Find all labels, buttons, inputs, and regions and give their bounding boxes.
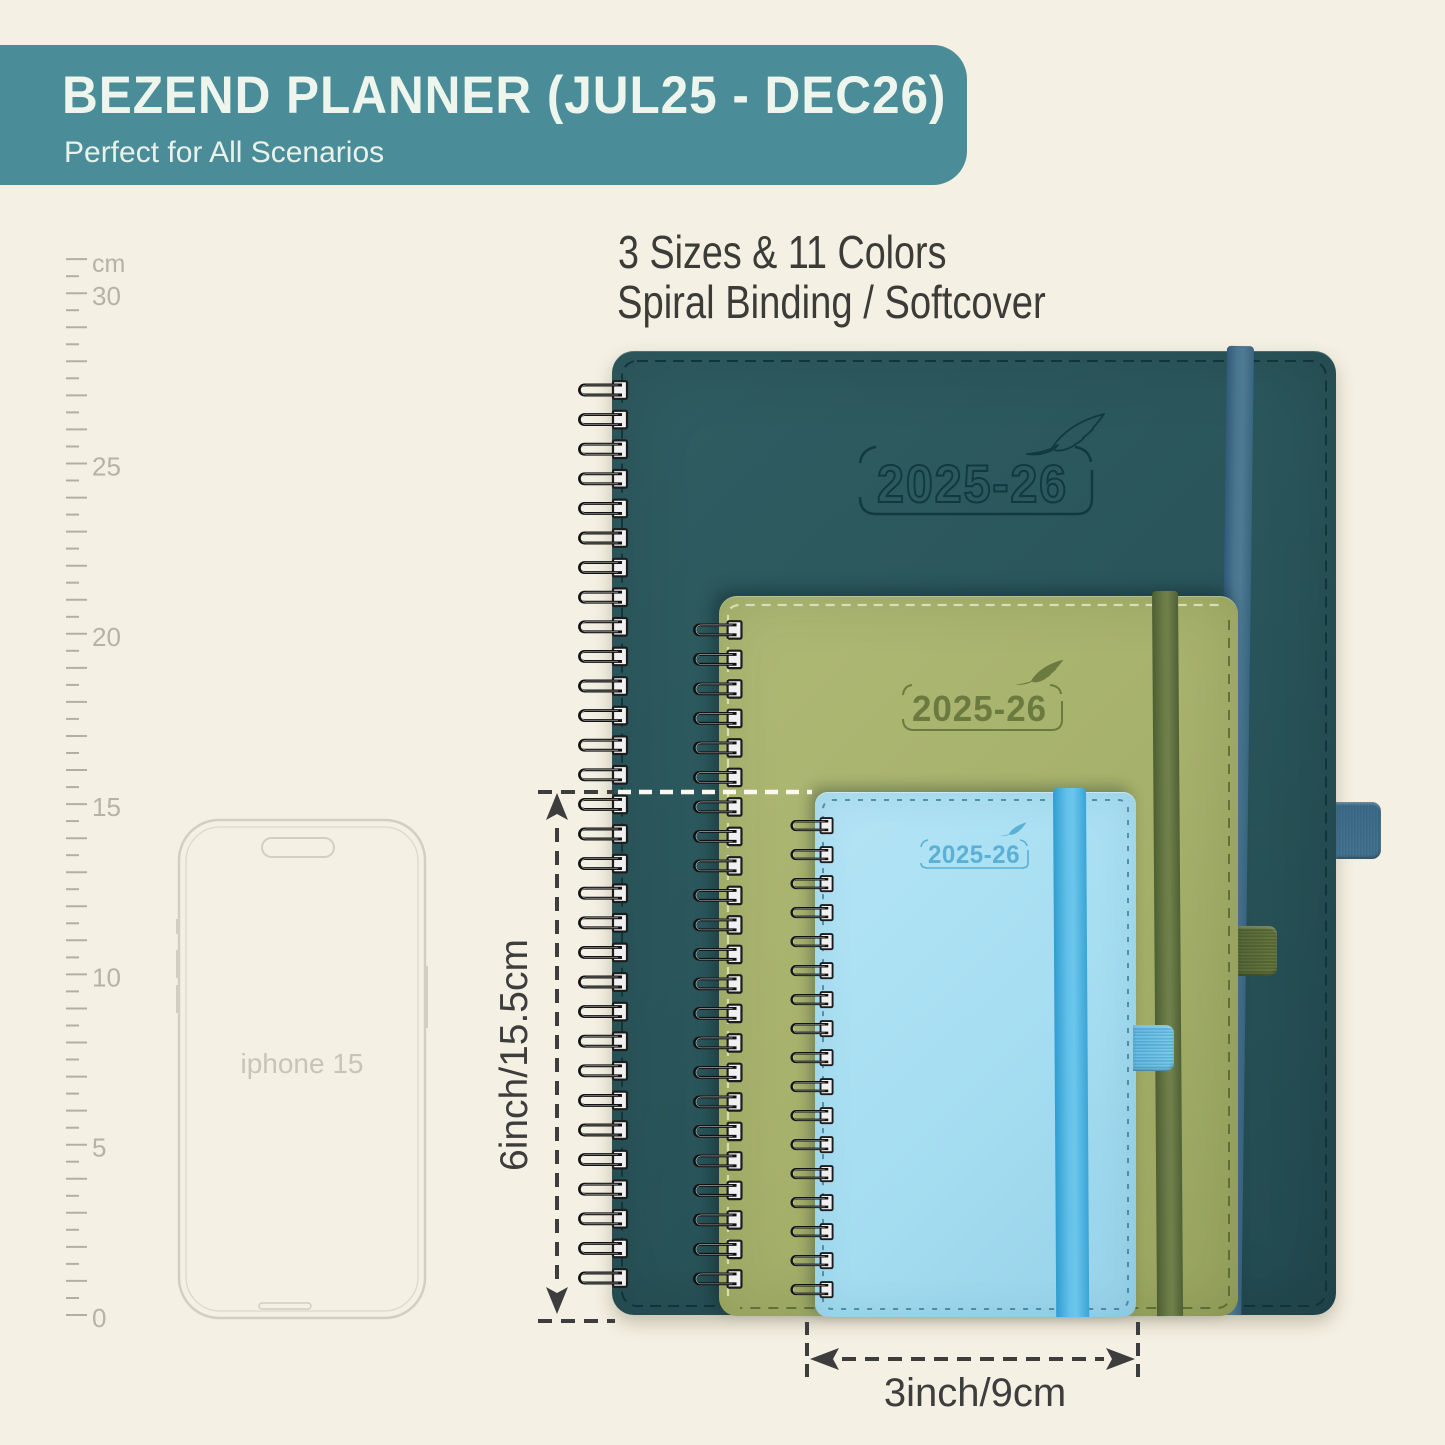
svg-text:3inch/9cm: 3inch/9cm xyxy=(884,1371,1066,1415)
svg-text:6inch/15.5cm: 6inch/15.5cm xyxy=(493,939,536,1171)
